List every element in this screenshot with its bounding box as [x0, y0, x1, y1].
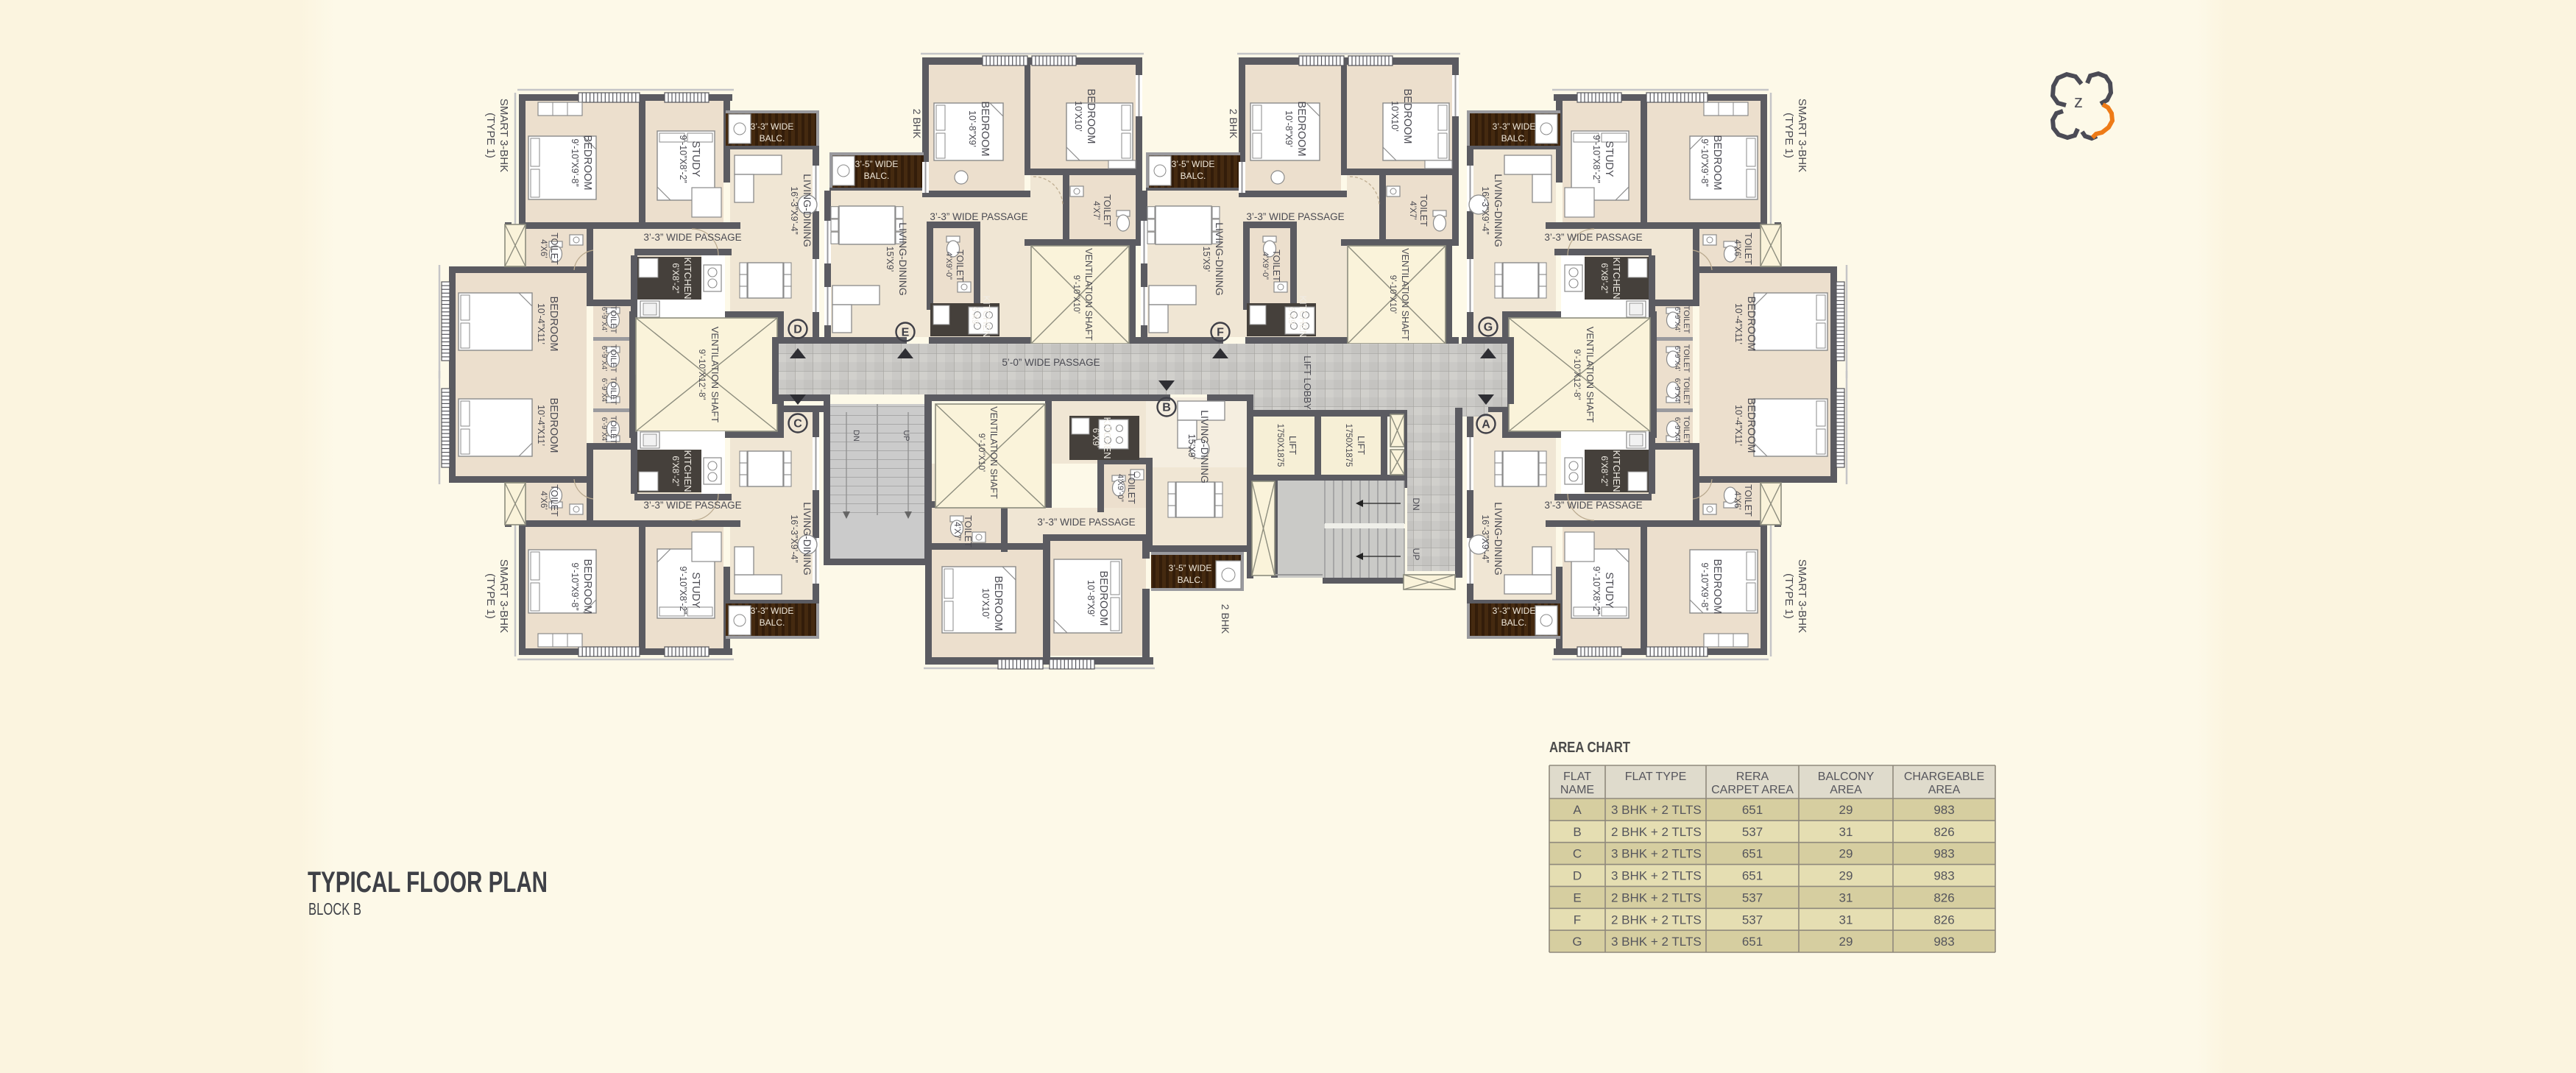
- svg-text:3’-3” WIDE: 3’-3” WIDE: [751, 121, 794, 132]
- svg-text:RERA: RERA: [1736, 771, 1769, 783]
- svg-text:983: 983: [1933, 935, 1954, 949]
- svg-text:3’-3” WIDE PASSAGE: 3’-3” WIDE PASSAGE: [643, 232, 741, 243]
- svg-text:LIFT: LIFT: [1356, 436, 1366, 455]
- svg-text:KITCHEN: KITCHEN: [1298, 295, 1309, 337]
- svg-text:VENTILATION SHAFT: VENTILATION SHAFT: [710, 327, 721, 423]
- svg-text:6’-9”X4’: 6’-9”X4’: [1673, 378, 1681, 403]
- svg-text:TOILET: TOILET: [1743, 484, 1753, 517]
- svg-text:BEDROOM: BEDROOM: [1295, 102, 1307, 157]
- svg-text:537: 537: [1742, 825, 1763, 839]
- svg-text:2 BHK: 2 BHK: [1220, 604, 1231, 634]
- svg-text:6’X8’-2”: 6’X8’-2”: [670, 263, 681, 293]
- svg-text:4’X6’: 4’X6’: [539, 491, 548, 510]
- svg-text:BALC.: BALC.: [1501, 617, 1527, 628]
- svg-text:TOILET: TOILET: [1126, 472, 1136, 504]
- svg-text:STUDY: STUDY: [1603, 141, 1615, 177]
- svg-text:D: D: [1573, 869, 1582, 883]
- svg-text:KITCHEN: KITCHEN: [1611, 450, 1622, 492]
- svg-text:16’-3”X9’-4”: 16’-3”X9’-4”: [1480, 186, 1490, 234]
- svg-text:TYPICAL FLOOR PLAN: TYPICAL FLOOR PLAN: [308, 866, 548, 899]
- svg-text:BEDROOM: BEDROOM: [581, 559, 593, 615]
- svg-text:3’-5” WIDE: 3’-5” WIDE: [855, 159, 899, 169]
- svg-text:G: G: [1572, 935, 1582, 949]
- svg-text:C: C: [1573, 847, 1582, 861]
- svg-text:UP: UP: [902, 430, 910, 441]
- svg-text:6’X9’: 6’X9’: [970, 307, 980, 327]
- svg-text:LIFT LOBBY: LIFT LOBBY: [1302, 355, 1313, 410]
- svg-text:3 BHK + 2 TLTS: 3 BHK + 2 TLTS: [1611, 869, 1702, 883]
- svg-text:BLOCK B: BLOCK B: [308, 899, 361, 918]
- svg-text:6’-9”X4’: 6’-9”X4’: [1673, 417, 1681, 442]
- svg-text:DN: DN: [852, 430, 860, 442]
- svg-text:29: 29: [1839, 803, 1853, 817]
- svg-text:LIVING-DINING: LIVING-DINING: [1493, 502, 1504, 576]
- svg-text:KITCHEN: KITCHEN: [682, 257, 693, 299]
- svg-text:A: A: [1573, 803, 1582, 817]
- svg-text:2 BHK: 2 BHK: [1228, 109, 1239, 139]
- svg-text:BEDROOM: BEDROOM: [979, 102, 991, 157]
- svg-text:537: 537: [1742, 890, 1763, 904]
- svg-text:9’-10”X10’: 9’-10”X10’: [977, 433, 986, 472]
- svg-text:KITCHEN: KITCHEN: [1102, 417, 1113, 458]
- svg-text:3 BHK + 2 TLTS: 3 BHK + 2 TLTS: [1611, 847, 1702, 861]
- svg-text:10’-8”X9’: 10’-8”X9’: [967, 110, 977, 147]
- svg-text:9’-10”X8’-2”: 9’-10”X8’-2”: [1591, 566, 1602, 614]
- svg-text:6’-9”X4’: 6’-9”X4’: [600, 378, 608, 403]
- svg-text:BALC.: BALC.: [760, 133, 785, 144]
- svg-text:3’-3” WIDE PASSAGE: 3’-3” WIDE PASSAGE: [643, 500, 741, 511]
- svg-text:9’-10”X12’-8”: 9’-10”X12’-8”: [697, 349, 707, 400]
- svg-text:KITCHEN: KITCHEN: [981, 295, 992, 337]
- svg-text:CHARGEABLE: CHARGEABLE: [1904, 771, 1984, 783]
- svg-text:AREA: AREA: [1830, 784, 1862, 796]
- svg-text:2 BHK: 2 BHK: [911, 109, 923, 139]
- svg-text:z: z: [2074, 92, 2083, 112]
- svg-text:E: E: [902, 327, 910, 339]
- svg-text:9’-10”X9’-8”: 9’-10”X9’-8”: [1699, 562, 1710, 610]
- svg-text:NAME: NAME: [1560, 784, 1594, 796]
- svg-text:3’-3” WIDE PASSAGE: 3’-3” WIDE PASSAGE: [1544, 232, 1642, 243]
- svg-text:VENTILATION SHAFT: VENTILATION SHAFT: [1585, 327, 1596, 423]
- svg-text:LIVING-DINING: LIVING-DINING: [897, 222, 909, 296]
- svg-text:2 BHK + 2 TLTS: 2 BHK + 2 TLTS: [1611, 913, 1702, 927]
- svg-text:SMART 3-BHK: SMART 3-BHK: [498, 99, 510, 172]
- svg-text:4’X7’: 4’X7’: [1408, 201, 1417, 220]
- svg-text:16’-3”X9’-4”: 16’-3”X9’-4”: [789, 514, 799, 562]
- svg-text:BALC.: BALC.: [864, 171, 890, 181]
- svg-text:6’-9”X4’: 6’-9”X4’: [1673, 346, 1681, 371]
- svg-text:3’-3” WIDE PASSAGE: 3’-3” WIDE PASSAGE: [1246, 211, 1344, 222]
- svg-text:LIVING-DINING: LIVING-DINING: [802, 502, 813, 576]
- svg-text:3 BHK + 2 TLTS: 3 BHK + 2 TLTS: [1611, 935, 1702, 949]
- svg-text:10’-4”X11’: 10’-4”X11’: [1733, 405, 1744, 446]
- svg-text:9’-10”X12’-8”: 9’-10”X12’-8”: [1572, 349, 1582, 400]
- svg-text:15’X9’: 15’X9’: [1186, 434, 1197, 460]
- svg-text:TOILET: TOILET: [1271, 249, 1281, 282]
- svg-text:KITCHEN: KITCHEN: [1611, 257, 1622, 299]
- svg-text:6’-9”X4’: 6’-9”X4’: [600, 307, 608, 332]
- svg-text:1750X1875: 1750X1875: [1344, 424, 1353, 467]
- svg-text:F: F: [1217, 327, 1224, 339]
- svg-text:LIVING-DINING: LIVING-DINING: [1493, 174, 1504, 247]
- svg-text:6’X8’-2”: 6’X8’-2”: [1599, 263, 1610, 293]
- svg-text:9’-10”X9’-8”: 9’-10”X9’-8”: [570, 562, 580, 610]
- svg-text:B: B: [1162, 402, 1171, 414]
- svg-text:VENTILATION SHAFT: VENTILATION SHAFT: [1400, 248, 1410, 341]
- svg-text:983: 983: [1933, 847, 1954, 861]
- svg-text:9’-10”X8’-2”: 9’-10”X8’-2”: [1591, 135, 1602, 183]
- svg-text:3’-3” WIDE PASSAGE: 3’-3” WIDE PASSAGE: [1544, 500, 1642, 511]
- svg-text:9’-10”X9’-8”: 9’-10”X9’-8”: [570, 138, 580, 186]
- svg-text:BEDROOM: BEDROOM: [1097, 571, 1109, 626]
- svg-text:4’X6’: 4’X6’: [539, 239, 548, 258]
- svg-text:4’X6’: 4’X6’: [1733, 239, 1741, 258]
- svg-text:BALC.: BALC.: [1178, 575, 1203, 585]
- svg-text:TOILET: TOILET: [1743, 233, 1753, 265]
- svg-text:TOILET: TOILET: [955, 249, 965, 282]
- svg-text:1750X1875: 1750X1875: [1275, 424, 1284, 467]
- svg-text:983: 983: [1933, 869, 1954, 883]
- svg-text:10’X10’: 10’X10’: [1390, 101, 1400, 132]
- svg-text:3’-3” WIDE PASSAGE: 3’-3” WIDE PASSAGE: [1037, 517, 1135, 528]
- svg-text:BALC.: BALC.: [1181, 171, 1206, 181]
- svg-text:(TYPE 1): (TYPE 1): [1783, 113, 1795, 158]
- svg-text:29: 29: [1839, 935, 1853, 949]
- svg-text:LIFT: LIFT: [1287, 436, 1298, 455]
- svg-text:BALCONY: BALCONY: [1818, 771, 1875, 783]
- svg-text:TOILET: TOILET: [1682, 416, 1691, 445]
- svg-text:826: 826: [1933, 825, 1954, 839]
- svg-text:826: 826: [1933, 890, 1954, 904]
- svg-text:SMART 3-BHK: SMART 3-BHK: [498, 559, 510, 633]
- svg-text:6’X9’: 6’X9’: [1287, 307, 1297, 327]
- svg-text:TOILET: TOILET: [963, 515, 973, 548]
- svg-text:STUDY: STUDY: [690, 572, 701, 608]
- svg-text:BEDROOM: BEDROOM: [548, 297, 559, 352]
- svg-text:4’X9’-0”: 4’X9’-0”: [1116, 474, 1125, 502]
- svg-text:BEDROOM: BEDROOM: [1711, 559, 1723, 615]
- svg-text:SMART 3-BHK: SMART 3-BHK: [1796, 99, 1808, 172]
- svg-text:6’-9”X4’: 6’-9”X4’: [1673, 307, 1681, 332]
- svg-text:TOILET: TOILET: [609, 416, 618, 445]
- svg-text:TOILET: TOILET: [609, 377, 618, 406]
- svg-text:TOILET: TOILET: [609, 305, 618, 334]
- svg-text:3’-3” WIDE: 3’-3” WIDE: [751, 606, 794, 616]
- svg-text:TOILET: TOILET: [1102, 194, 1112, 227]
- svg-text:2 BHK + 2 TLTS: 2 BHK + 2 TLTS: [1611, 890, 1702, 904]
- svg-text:3’-3” WIDE: 3’-3” WIDE: [1493, 606, 1536, 616]
- svg-text:FLAT: FLAT: [1563, 771, 1591, 783]
- svg-text:BEDROOM: BEDROOM: [1401, 89, 1413, 144]
- svg-text:BALC.: BALC.: [760, 617, 785, 628]
- svg-text:BEDROOM: BEDROOM: [548, 398, 559, 453]
- svg-text:KITCHEN: KITCHEN: [682, 450, 693, 492]
- svg-text:6’-9”X4’: 6’-9”X4’: [600, 346, 608, 371]
- svg-text:10’X10’: 10’X10’: [1073, 101, 1083, 132]
- svg-text:15’X9’: 15’X9’: [1201, 247, 1211, 272]
- svg-text:31: 31: [1839, 913, 1853, 927]
- svg-text:10’-8”X9’: 10’-8”X9’: [1284, 110, 1294, 147]
- svg-text:SMART 3-BHK: SMART 3-BHK: [1796, 559, 1808, 633]
- svg-text:651: 651: [1742, 803, 1763, 817]
- svg-text:LIVING-DINING: LIVING-DINING: [1214, 222, 1225, 296]
- svg-text:826: 826: [1933, 913, 1954, 927]
- svg-text:3’-3” WIDE: 3’-3” WIDE: [1493, 121, 1536, 132]
- svg-text:AREA CHART: AREA CHART: [1549, 740, 1630, 756]
- svg-text:16’-3”X9’-4”: 16’-3”X9’-4”: [789, 186, 799, 234]
- svg-text:STUDY: STUDY: [1603, 572, 1615, 608]
- svg-text:C: C: [793, 418, 802, 431]
- svg-text:BEDROOM: BEDROOM: [1745, 398, 1757, 453]
- svg-text:4’X7’: 4’X7’: [1091, 201, 1100, 220]
- svg-text:E: E: [1573, 890, 1581, 904]
- svg-text:31: 31: [1839, 890, 1853, 904]
- svg-text:4’X9’-0”: 4’X9’-0”: [1261, 252, 1270, 280]
- svg-text:15’X9’: 15’X9’: [885, 247, 895, 272]
- svg-text:31: 31: [1839, 825, 1853, 839]
- svg-text:BEDROOM: BEDROOM: [1711, 135, 1723, 191]
- svg-text:G: G: [1484, 322, 1493, 334]
- svg-text:29: 29: [1839, 847, 1853, 861]
- svg-text:TOILET: TOILET: [1682, 305, 1691, 334]
- svg-text:TOILET: TOILET: [1418, 194, 1429, 227]
- svg-text:983: 983: [1933, 803, 1954, 817]
- svg-text:6’X8’-2”: 6’X8’-2”: [670, 456, 681, 486]
- svg-text:VENTILATION SHAFT: VENTILATION SHAFT: [1083, 248, 1094, 341]
- svg-text:B: B: [1573, 825, 1581, 839]
- svg-text:3’-5” WIDE: 3’-5” WIDE: [1172, 159, 1215, 169]
- svg-text:AREA: AREA: [1928, 784, 1961, 796]
- svg-text:10’-4”X11’: 10’-4”X11’: [1733, 303, 1744, 344]
- svg-text:5’-0” WIDE PASSAGE: 5’-0” WIDE PASSAGE: [1002, 357, 1100, 368]
- svg-text:A: A: [1482, 419, 1490, 431]
- svg-text:10’-4”X11’: 10’-4”X11’: [536, 303, 546, 344]
- svg-text:3’-5” WIDE: 3’-5” WIDE: [1169, 563, 1212, 573]
- svg-text:6’-9”X4’: 6’-9”X4’: [600, 417, 608, 442]
- svg-text:CARPET AREA: CARPET AREA: [1711, 784, 1794, 796]
- svg-text:6’X8’-2”: 6’X8’-2”: [1599, 456, 1610, 486]
- svg-text:LIVING-DINING: LIVING-DINING: [802, 174, 813, 247]
- svg-text:9’-10”X10’: 9’-10”X10’: [1072, 275, 1080, 314]
- svg-text:TOILET: TOILET: [609, 344, 618, 373]
- svg-text:TOILET: TOILET: [1682, 377, 1691, 406]
- svg-text:2 BHK + 2 TLTS: 2 BHK + 2 TLTS: [1611, 825, 1702, 839]
- svg-text:3’-3” WIDE PASSAGE: 3’-3” WIDE PASSAGE: [930, 211, 1027, 222]
- svg-text:FLAT TYPE: FLAT TYPE: [1625, 771, 1687, 783]
- svg-text:10’X10’: 10’X10’: [980, 588, 991, 619]
- svg-text:(TYPE 1): (TYPE 1): [484, 573, 497, 619]
- svg-text:LIVING-DINING: LIVING-DINING: [1199, 410, 1211, 484]
- svg-text:UP: UP: [1411, 548, 1421, 561]
- svg-text:3 BHK + 2 TLTS: 3 BHK + 2 TLTS: [1611, 803, 1702, 817]
- svg-text:BEDROOM: BEDROOM: [1085, 89, 1097, 144]
- svg-text:9’-10”X10’: 9’-10”X10’: [1388, 275, 1397, 314]
- svg-text:TOILET: TOILET: [549, 233, 559, 265]
- svg-text:TOILET: TOILET: [549, 484, 559, 517]
- svg-text:D: D: [793, 324, 802, 336]
- svg-text:651: 651: [1742, 935, 1763, 949]
- svg-text:(TYPE 1): (TYPE 1): [1783, 573, 1795, 619]
- svg-text:BEDROOM: BEDROOM: [1745, 297, 1757, 352]
- svg-text:TOILET: TOILET: [1682, 344, 1691, 373]
- svg-text:29: 29: [1839, 869, 1853, 883]
- svg-text:STUDY: STUDY: [690, 141, 701, 177]
- svg-text:4’X7’: 4’X7’: [952, 522, 961, 541]
- svg-text:9’-10”X8’-2”: 9’-10”X8’-2”: [678, 135, 688, 183]
- svg-text:F: F: [1574, 913, 1581, 927]
- svg-text:9’-10”X8’-2”: 9’-10”X8’-2”: [678, 566, 688, 614]
- svg-text:(TYPE 1): (TYPE 1): [484, 113, 497, 158]
- svg-text:VENTILATION SHAFT: VENTILATION SHAFT: [988, 406, 999, 499]
- svg-text:9’-10”X9’-8”: 9’-10”X9’-8”: [1699, 138, 1710, 186]
- svg-text:BEDROOM: BEDROOM: [581, 135, 593, 191]
- svg-text:651: 651: [1742, 869, 1763, 883]
- svg-text:BALC.: BALC.: [1501, 133, 1527, 144]
- svg-text:4’X9’-0”: 4’X9’-0”: [944, 252, 953, 280]
- svg-text:651: 651: [1742, 847, 1763, 861]
- svg-text:10’-8”X9’: 10’-8”X9’: [1086, 580, 1096, 617]
- svg-text:BEDROOM: BEDROOM: [992, 576, 1004, 631]
- svg-text:DN: DN: [1411, 497, 1421, 510]
- svg-text:6’X9’: 6’X9’: [1091, 428, 1101, 448]
- svg-text:4’X6’: 4’X6’: [1733, 491, 1741, 510]
- svg-text:10’-4”X11’: 10’-4”X11’: [536, 405, 546, 446]
- svg-text:537: 537: [1742, 913, 1763, 927]
- svg-text:16’-3”X9’-4”: 16’-3”X9’-4”: [1480, 514, 1490, 562]
